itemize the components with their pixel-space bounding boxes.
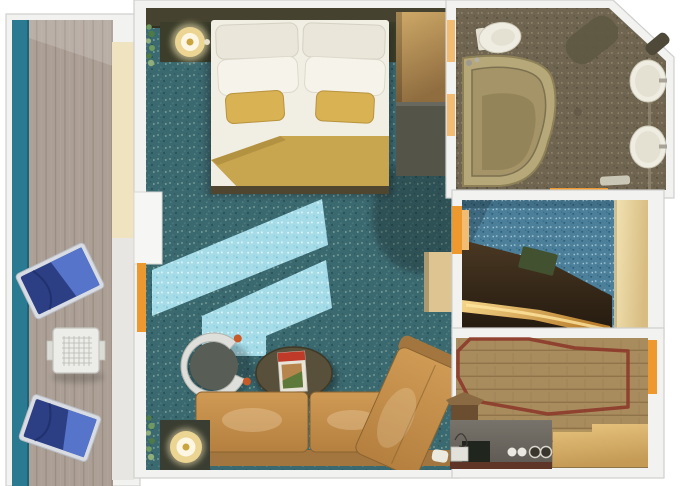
pillow-front-left <box>217 56 299 96</box>
bar-glass-2 <box>541 447 552 458</box>
bar-item-white-box <box>451 447 468 461</box>
bed <box>211 20 389 194</box>
pillow-front-right <box>304 56 386 96</box>
pillow-back-left <box>215 23 298 60</box>
sofa-side-table <box>160 420 210 472</box>
dressing-door-frame <box>462 210 469 250</box>
dressing-wardrobe-edge <box>614 200 617 332</box>
dresser-top-highlight <box>396 102 454 106</box>
bar-counter <box>450 420 552 469</box>
dressing-room <box>452 190 664 338</box>
accent-pillow-left <box>225 90 285 124</box>
floorplan-canvas <box>0 0 680 486</box>
wall-column <box>134 192 162 264</box>
wardrobe-shadow-edge <box>396 12 402 102</box>
entry-cabinet-edge <box>553 430 592 432</box>
balcony <box>6 14 140 486</box>
bedroom-wardrobe <box>396 12 452 102</box>
bath-towel <box>600 175 630 186</box>
floorplan-image <box>0 0 680 486</box>
bed-foot-bench <box>211 186 389 194</box>
doorway-cabinet-shadow <box>424 252 429 312</box>
pillow-back-right <box>302 23 385 60</box>
bar-glass-1 <box>530 447 541 458</box>
bar-cup-1 <box>508 448 517 457</box>
floor-drain <box>574 108 582 116</box>
entry-door <box>648 340 657 394</box>
bar-cup-2 <box>518 448 527 457</box>
cabin-outer-wall-gray <box>112 238 134 480</box>
sink-bottom <box>630 126 667 168</box>
sofa-highlight-1 <box>222 408 282 432</box>
magazine <box>278 351 308 393</box>
dressing-wardrobe <box>614 200 648 332</box>
bathroom <box>446 0 674 198</box>
balcony-door <box>137 263 146 332</box>
bath-wall-accent-2 <box>447 94 455 136</box>
sink-faucet-top <box>659 79 667 83</box>
sink-faucet-bottom <box>659 145 667 149</box>
entry-hall <box>446 328 664 478</box>
bar-front-panel <box>450 462 552 469</box>
tub-handle <box>475 58 480 63</box>
accent-pillow-right <box>315 91 374 124</box>
cabin-outer-wall-cream <box>112 42 134 238</box>
sink-top <box>630 60 667 102</box>
tub-faucet <box>466 60 472 66</box>
bath-wall-accent-1 <box>447 20 455 62</box>
sofa-lamp-ring <box>183 444 190 451</box>
balcony-table <box>47 328 105 383</box>
dressing-door <box>452 206 462 254</box>
dresser <box>396 102 454 176</box>
main-cabin <box>134 0 469 480</box>
